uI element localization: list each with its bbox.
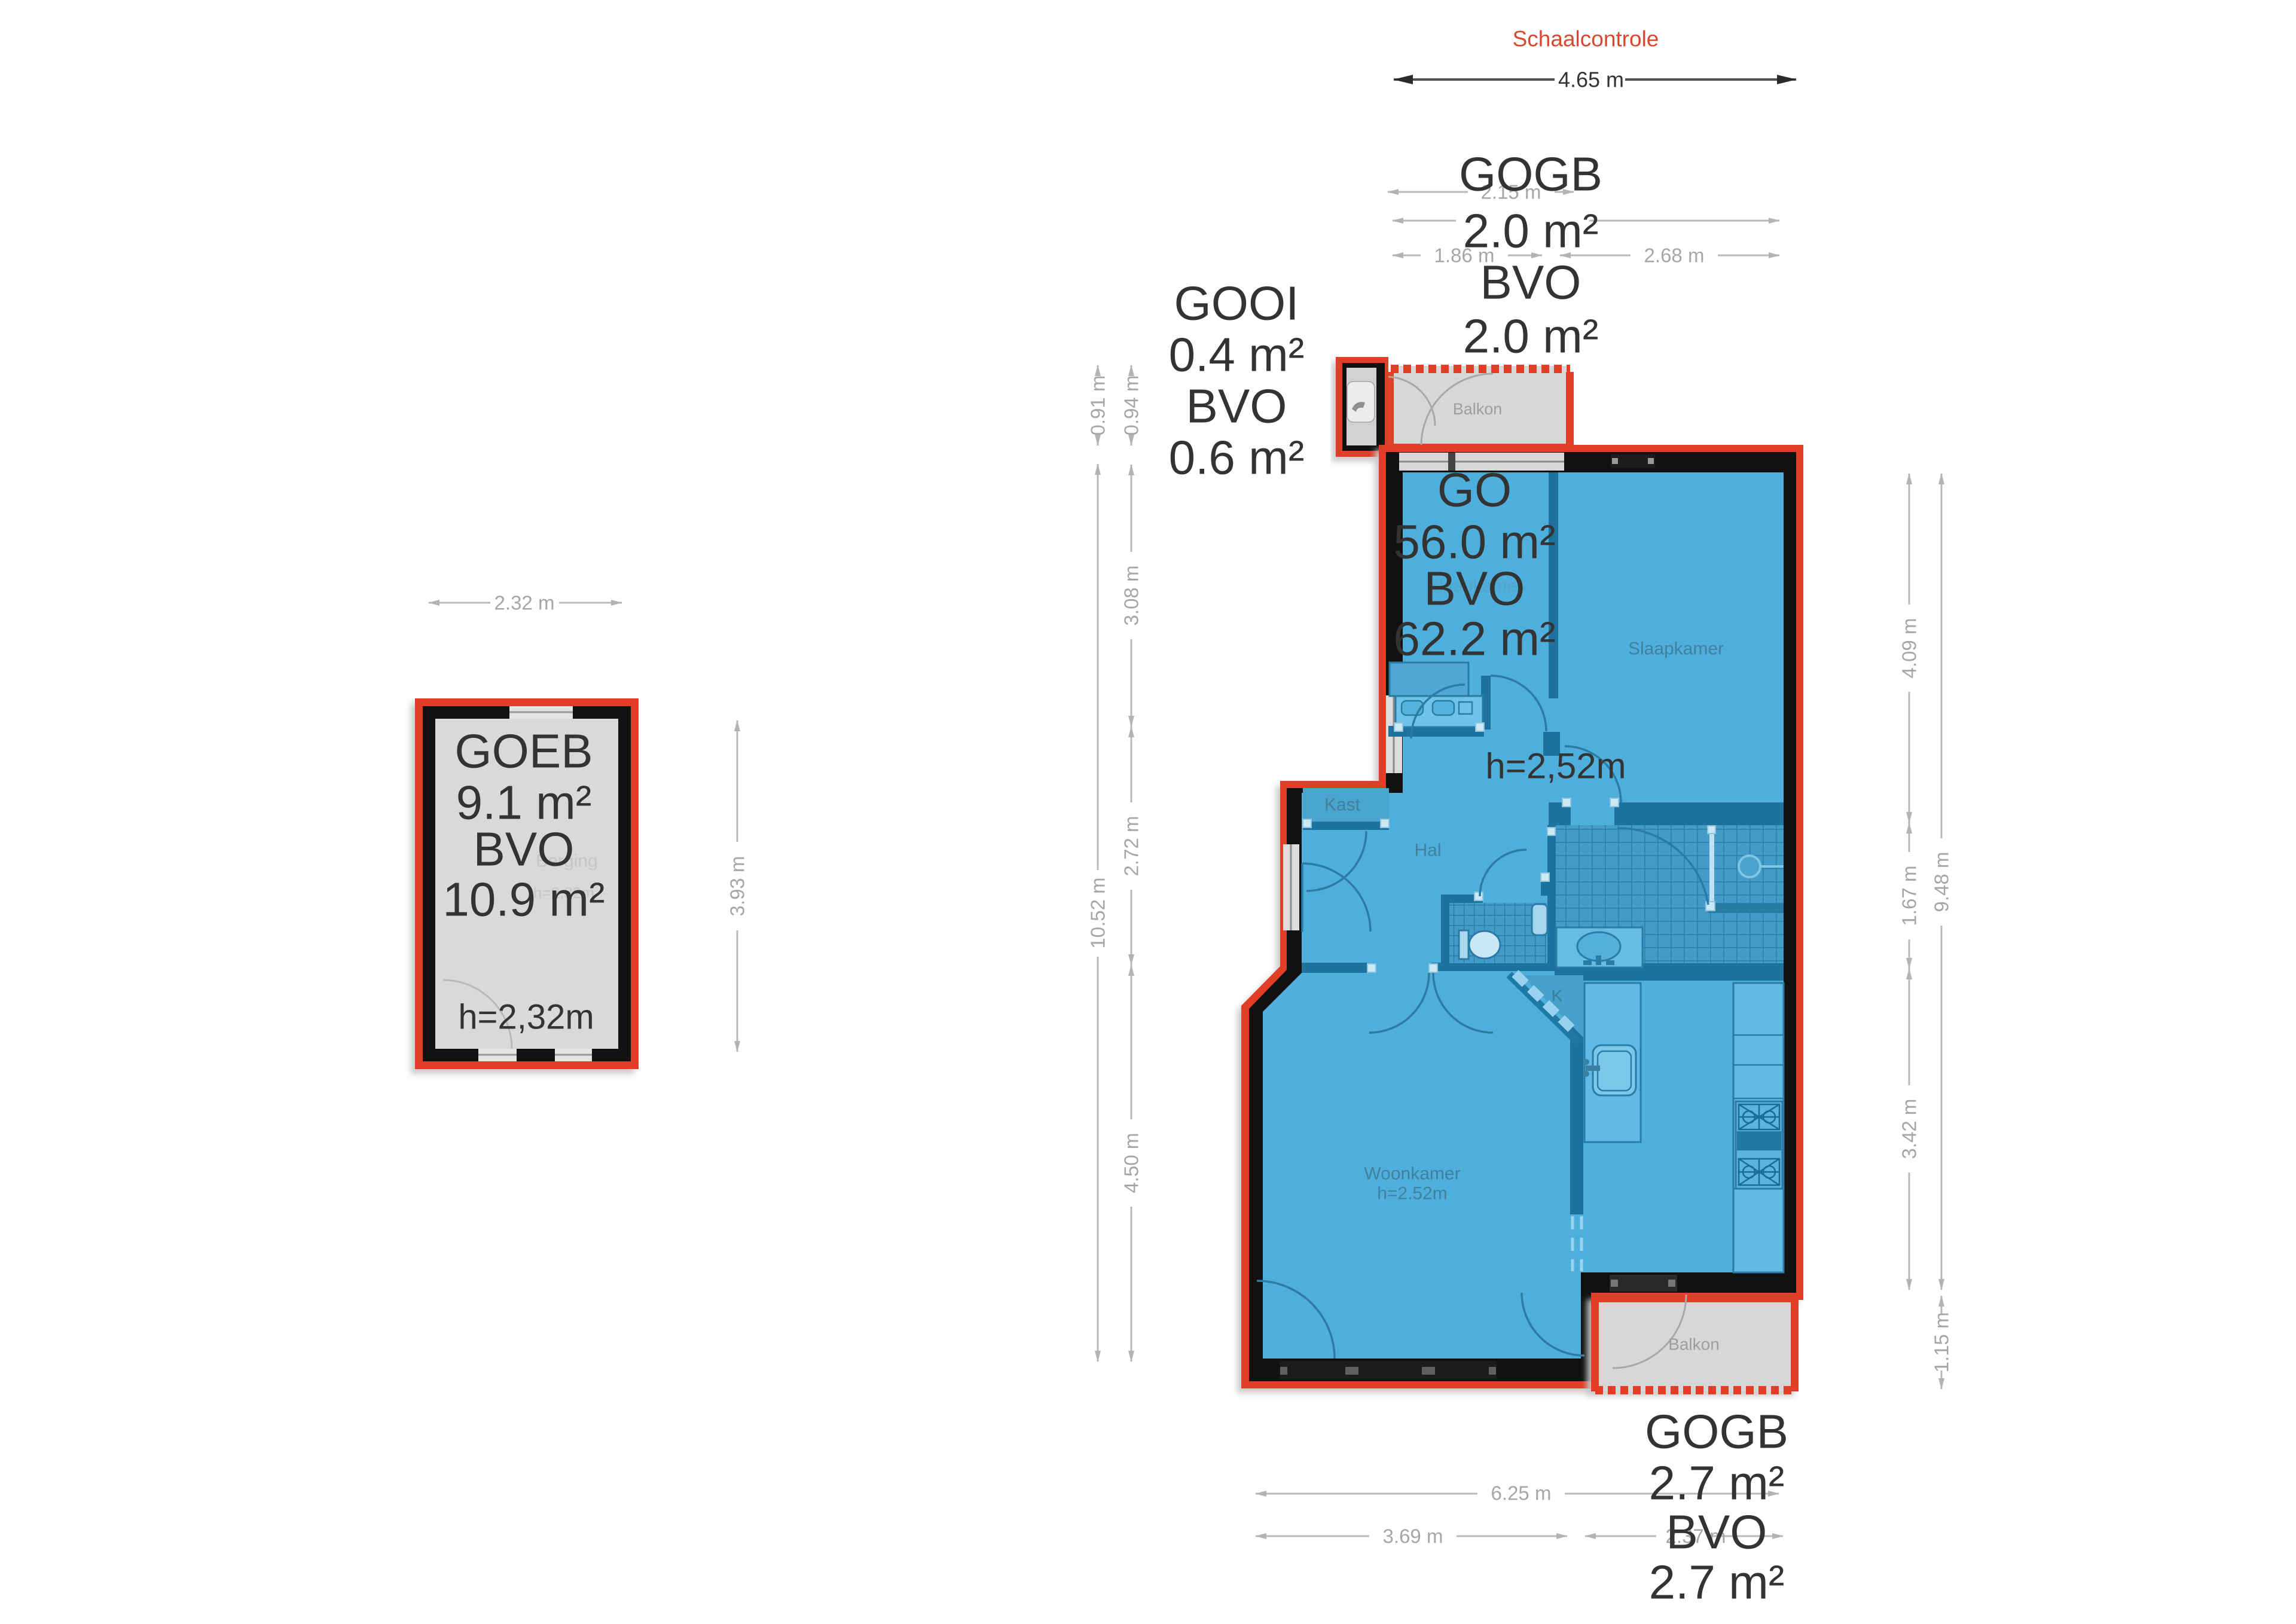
- svg-text:0.4 m²: 0.4 m²: [1169, 328, 1305, 381]
- svg-text:4.50 m: 4.50 m: [1120, 1133, 1143, 1193]
- svg-text:2.7 m²: 2.7 m²: [1649, 1556, 1785, 1609]
- svg-text:BVO: BVO: [1666, 1506, 1767, 1559]
- svg-text:Kast: Kast: [1324, 795, 1361, 815]
- svg-text:2.0 m²: 2.0 m²: [1463, 310, 1599, 363]
- svg-text:BVO: BVO: [1424, 562, 1525, 615]
- svg-text:56.0 m²: 56.0 m²: [1393, 515, 1555, 569]
- svg-text:0.94 m: 0.94 m: [1120, 376, 1143, 436]
- svg-text:0.6 m²: 0.6 m²: [1169, 431, 1305, 484]
- svg-text:2.68 m: 2.68 m: [1644, 245, 1705, 267]
- svg-text:GOGB: GOGB: [1459, 148, 1602, 201]
- svg-text:2.72 m: 2.72 m: [1120, 816, 1143, 877]
- svg-text:2.32 m: 2.32 m: [494, 592, 555, 614]
- svg-text:K: K: [1552, 987, 1563, 1005]
- svg-text:GOOI: GOOI: [1174, 277, 1299, 330]
- svg-text:3.69 m: 3.69 m: [1383, 1525, 1443, 1547]
- svg-text:0.91 m: 0.91 m: [1087, 376, 1109, 436]
- svg-text:Hal: Hal: [1414, 841, 1441, 860]
- svg-text:GOGB: GOGB: [1645, 1405, 1788, 1458]
- svg-text:Balkon: Balkon: [1453, 400, 1503, 418]
- svg-text:6.25 m: 6.25 m: [1491, 1482, 1552, 1504]
- svg-text:GOEB: GOEB: [454, 725, 593, 778]
- svg-text:62.2 m²: 62.2 m²: [1393, 612, 1555, 666]
- svg-text:GO: GO: [1437, 463, 1512, 517]
- svg-text:Woonkamer: Woonkamer: [1364, 1164, 1460, 1184]
- svg-text:h=2,52m: h=2,52m: [1485, 746, 1626, 786]
- svg-text:9.1 m²: 9.1 m²: [456, 776, 592, 829]
- svg-text:4.09 m: 4.09 m: [1898, 618, 1921, 679]
- svg-text:Schaalcontrole: Schaalcontrole: [1513, 27, 1659, 51]
- svg-text:3.42 m: 3.42 m: [1898, 1099, 1921, 1159]
- svg-text:3.93 m: 3.93 m: [726, 856, 749, 917]
- svg-text:1.15 m: 1.15 m: [1931, 1312, 1953, 1373]
- svg-text:1.67 m: 1.67 m: [1898, 866, 1921, 926]
- svg-text:3.08 m: 3.08 m: [1120, 566, 1143, 626]
- svg-text:2.0 m²: 2.0 m²: [1463, 204, 1599, 258]
- svg-text:BVO: BVO: [474, 823, 575, 876]
- svg-text:4.65 m: 4.65 m: [1558, 68, 1624, 92]
- svg-text:Slaapkamer: Slaapkamer: [1628, 639, 1724, 659]
- svg-text:BVO: BVO: [1186, 380, 1287, 433]
- svg-text:Balkon: Balkon: [1668, 1335, 1720, 1354]
- svg-text:9.48 m: 9.48 m: [1931, 852, 1953, 912]
- svg-text:BVO: BVO: [1480, 256, 1581, 309]
- svg-text:2.7 m²: 2.7 m²: [1649, 1457, 1785, 1510]
- svg-text:h=2.52m: h=2.52m: [1377, 1184, 1448, 1204]
- svg-text:10.9 m²: 10.9 m²: [442, 873, 604, 926]
- svg-text:10.52 m: 10.52 m: [1087, 877, 1109, 948]
- svg-text:h=2,32m: h=2,32m: [458, 998, 594, 1037]
